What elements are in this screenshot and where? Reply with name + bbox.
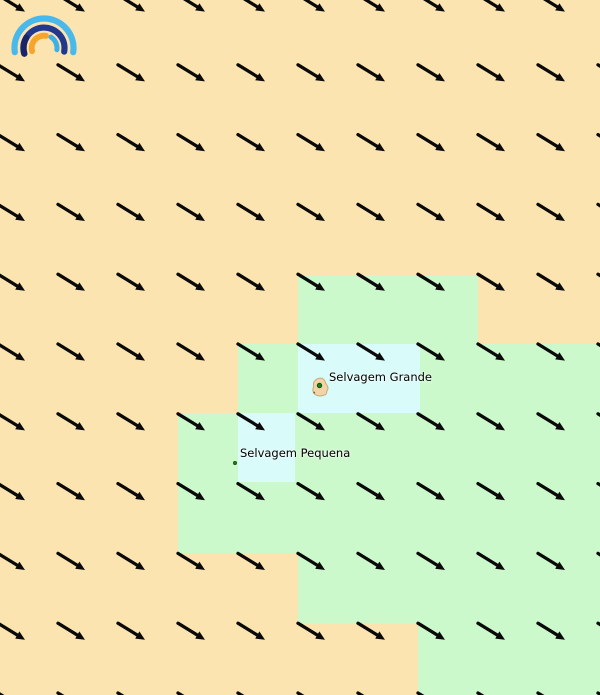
map-tile-green — [178, 413, 600, 553]
wind-arrow — [478, 135, 505, 152]
wind-arrow — [478, 553, 505, 570]
wind-arrow — [298, 0, 325, 12]
wind-arrow — [358, 204, 385, 221]
wind-arrow — [238, 135, 265, 152]
wind-arrow — [418, 623, 445, 640]
wind-arrow — [0, 414, 25, 431]
wind-arrow — [538, 623, 565, 640]
wind-arrow — [358, 65, 385, 82]
wind-arrow — [478, 204, 505, 221]
logo-orange-arc — [32, 36, 46, 51]
wind-arrow — [298, 65, 325, 82]
wind-arrow — [118, 344, 145, 361]
islands-layer — [0, 0, 600, 695]
wind-arrow — [118, 65, 145, 82]
wind-arrow — [118, 204, 145, 221]
wind-arrow — [538, 0, 565, 12]
logo-navy-dark-segment — [23, 38, 26, 54]
wind-arrow — [418, 204, 445, 221]
wind-arrow — [238, 65, 265, 82]
logo-inner-blue-arc — [51, 37, 57, 50]
wind-arrow — [178, 623, 205, 640]
wind-arrow — [538, 65, 565, 82]
wind-arrow — [538, 344, 565, 361]
wind-arrow — [118, 274, 145, 291]
wind-arrow — [478, 65, 505, 82]
selvagem-grande-summit-dot — [317, 383, 322, 388]
wind-arrow — [478, 414, 505, 431]
wind-arrow — [58, 344, 85, 361]
wind-arrow — [478, 274, 505, 291]
wind-arrow — [58, 204, 85, 221]
wind-arrow — [298, 623, 325, 640]
wind-arrow — [0, 553, 25, 570]
wind-arrow — [418, 274, 445, 291]
map-tile-green — [418, 622, 600, 695]
wind-arrow — [238, 414, 265, 431]
wind-arrow — [538, 274, 565, 291]
wind-arrow — [418, 135, 445, 152]
wind-arrow — [178, 484, 205, 501]
wind-arrow — [58, 274, 85, 291]
wind-arrow — [58, 65, 85, 82]
wind-arrow — [178, 553, 205, 570]
wind-arrow — [418, 553, 445, 570]
wind-arrow — [478, 623, 505, 640]
wind-arrow — [238, 274, 265, 291]
wind-arrow — [58, 553, 85, 570]
wind-arrow — [0, 65, 25, 82]
wind-arrow — [358, 135, 385, 152]
wind-arrow — [358, 344, 385, 361]
wind-arrow — [118, 484, 145, 501]
wind-arrow — [178, 0, 205, 12]
wind-arrow — [238, 204, 265, 221]
wind-arrow — [178, 65, 205, 82]
wind-arrow — [538, 135, 565, 152]
wind-arrow — [178, 414, 205, 431]
wind-arrow — [358, 274, 385, 291]
wind-arrow — [238, 0, 265, 12]
wind-arrow — [298, 414, 325, 431]
wind-arrow — [238, 553, 265, 570]
wind-arrow — [358, 0, 385, 12]
wind-arrow — [418, 484, 445, 501]
wind-arrow — [178, 135, 205, 152]
wind-arrow — [418, 344, 445, 361]
wind-arrow — [478, 484, 505, 501]
wind-arrow — [298, 204, 325, 221]
wind-arrow — [478, 0, 505, 12]
wind-arrow — [58, 414, 85, 431]
selvagem-grande-island-shape — [313, 378, 328, 396]
wind-arrow — [298, 344, 325, 361]
wind-arrow — [0, 623, 25, 640]
wind-arrow — [418, 65, 445, 82]
wind-arrow — [178, 344, 205, 361]
wind-arrow — [358, 484, 385, 501]
wind-arrow — [358, 414, 385, 431]
island-label-selvagem-grande: Selvagem Grande — [329, 371, 432, 383]
wind-arrow — [298, 484, 325, 501]
wind-arrow — [58, 484, 85, 501]
wind-arrow — [58, 623, 85, 640]
wind-arrow — [538, 484, 565, 501]
wind-arrow — [178, 204, 205, 221]
wind-arrow — [478, 344, 505, 361]
wind-arrow — [0, 344, 25, 361]
wind-arrow — [538, 414, 565, 431]
wind-arrow — [538, 204, 565, 221]
meteoblue-logo[interactable] — [8, 10, 78, 58]
wind-arrow — [238, 623, 265, 640]
wind-arrow — [118, 0, 145, 12]
map-tile-green — [298, 275, 478, 344]
weather-map-canvas[interactable]: Selvagem Grande Selvagem Pequena — [0, 0, 600, 695]
wind-arrow — [178, 274, 205, 291]
wind-arrow — [238, 484, 265, 501]
wind-arrow — [0, 135, 25, 152]
wind-arrow — [298, 135, 325, 152]
wind-arrow — [0, 204, 25, 221]
selvagem-grande-island-shadow-speck — [313, 392, 315, 394]
wind-arrow — [58, 135, 85, 152]
wind-arrow — [418, 414, 445, 431]
wind-arrow — [358, 553, 385, 570]
wind-arrow — [118, 623, 145, 640]
wind-arrow — [418, 0, 445, 12]
wind-arrow — [298, 553, 325, 570]
wind-arrow — [118, 414, 145, 431]
wind-arrow — [118, 553, 145, 570]
wind-arrow — [118, 135, 145, 152]
island-label-selvagem-pequena: Selvagem Pequena — [240, 447, 350, 459]
map-tile-layer — [0, 0, 600, 695]
selvagem-pequena-dot — [233, 461, 236, 464]
wind-arrow — [0, 484, 25, 501]
wind-arrow — [0, 274, 25, 291]
map-tile-green — [298, 553, 600, 623]
wind-arrows-layer — [0, 0, 600, 695]
wind-arrow — [298, 274, 325, 291]
wind-arrow — [358, 623, 385, 640]
wind-arrow — [538, 553, 565, 570]
wind-arrow — [238, 344, 265, 361]
